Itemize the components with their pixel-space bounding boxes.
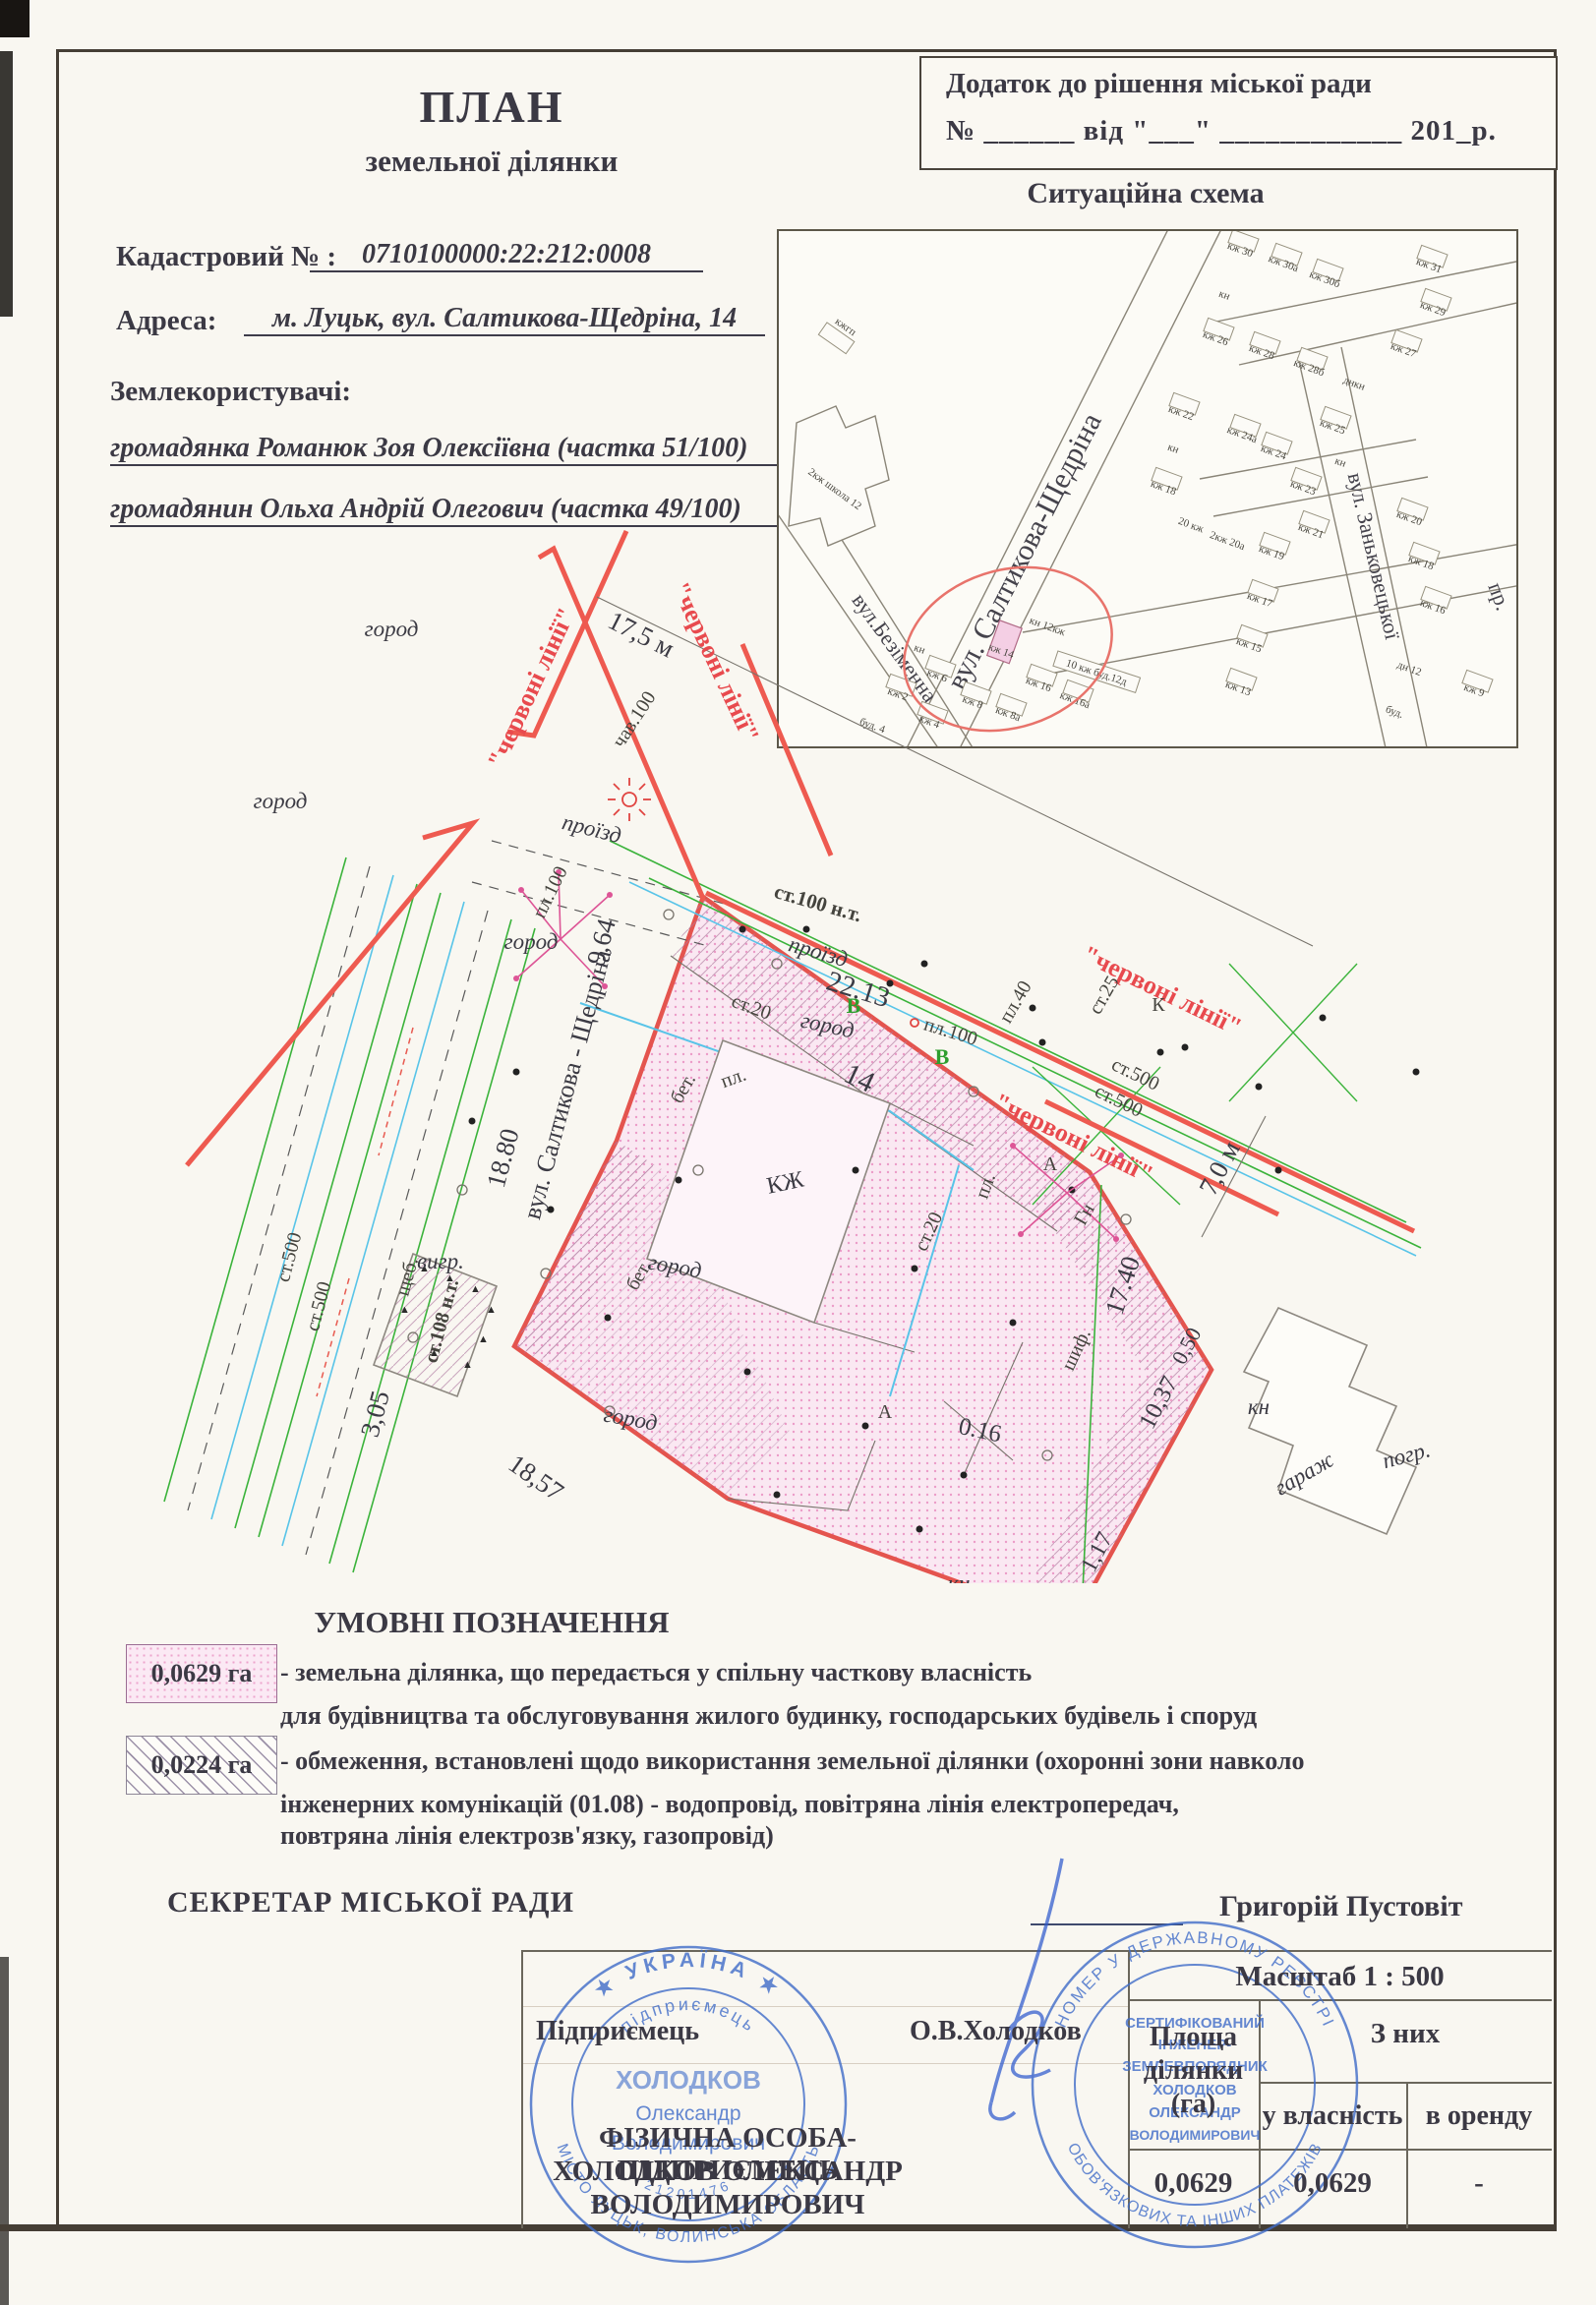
legend-item2-line3: повтряна лінія електрозв'язку, газопрові…	[280, 1821, 774, 1851]
table-area-header-2: ділянки	[1128, 2055, 1259, 2087]
legend-title: УМОВНІ ПОЗНАЧЕННЯ	[148, 1605, 836, 1640]
building-label: днкн	[1341, 375, 1367, 393]
svg-text:▲: ▲	[462, 1359, 473, 1371]
handwritten-signature	[990, 1859, 1062, 2119]
plan-svg: ▲▲▲ ▲▲▲ ▲▲	[98, 516, 1495, 1583]
frame-top	[56, 49, 1557, 52]
label-A: А	[878, 1401, 893, 1423]
label-st500: ст.500	[272, 1230, 306, 1284]
label-A: А	[1043, 1153, 1058, 1175]
address-value: м. Луцьк, вул. Салтикова-Щедріна, 14	[244, 303, 765, 336]
svg-text:▲: ▲	[486, 1304, 497, 1316]
page-title: ПЛАН	[148, 81, 836, 133]
garage-building	[1244, 1308, 1416, 1534]
stamp2-center-6: ВОЛОДИМИРОВИЧ	[1130, 2127, 1261, 2143]
label-st100: ст.100 н.т.	[772, 879, 864, 926]
dim-18-80: 18.80	[481, 1125, 525, 1190]
table-ownership-header: у власність	[1259, 2100, 1406, 2132]
cadastral-value: 0710100000:22:212:0008	[310, 239, 703, 272]
scan-artifact	[0, 0, 30, 37]
label-pogr: погр.	[1380, 1437, 1433, 1473]
building-label: кн	[1166, 442, 1181, 456]
scanned-land-plan-document: Додаток до рішення міської ради № ______…	[0, 0, 1596, 2305]
table-area-value: 0,0629	[1128, 2167, 1259, 2200]
entrepreneur-signature-name: О.В.Холодков	[910, 2016, 1082, 2047]
fop-line2: ХОЛОДКОВ ОЛЕКСАНДР	[521, 2156, 934, 2188]
label-kn: кн	[1248, 1394, 1270, 1419]
frame-right	[1554, 49, 1557, 2230]
legend-item1-line1: - земельна ділянка, що передається у спі…	[280, 1658, 1032, 1687]
address-label: Адреса:	[116, 305, 216, 337]
annex-line2: № ______ від "___" ____________ 201_р.	[946, 115, 1497, 148]
scan-artifact	[0, 51, 13, 317]
street-utility-lines	[164, 857, 535, 1572]
svg-text:★ УКРАЇНА ★: ★ УКРАЇНА ★	[590, 1949, 787, 2002]
landuser-1: громадянка Романюк Зоя Олексіївна (частк…	[110, 433, 791, 466]
cadastral-label: Кадастровий № :	[116, 241, 336, 273]
dim-3-05: 3,05	[355, 1388, 395, 1440]
legend-swatch-plot: 0,0629 га	[126, 1644, 277, 1703]
table-lease-value: -	[1406, 2167, 1552, 2200]
dim-18-57: 18,57	[503, 1448, 569, 1507]
label-K: К	[1152, 994, 1165, 1016]
stamp1-ring-top: ★ УКРАЇНА ★	[590, 1949, 787, 2002]
label-V: В	[935, 1044, 950, 1069]
dim-17-5: 17,5 м	[604, 605, 680, 663]
label-vygr: вигр.	[417, 1249, 464, 1273]
legend-swatch-restriction: 0,0224 га	[126, 1736, 277, 1795]
svg-text:▲: ▲	[478, 1333, 489, 1345]
entrepreneur-label: Підприємець	[536, 2016, 699, 2047]
legend-item1-line2: для будівництва та обслуговування жилого…	[280, 1701, 1257, 1731]
kzhgp-building: кжгп	[818, 312, 861, 353]
label-kn: кн	[947, 1571, 970, 1583]
scheme-title: Ситуаційна схема	[777, 177, 1514, 210]
building-label: кн	[1333, 455, 1348, 470]
plan-drawing: ▲▲▲ ▲▲▲ ▲▲	[98, 516, 1495, 1583]
label-V: В	[847, 993, 861, 1018]
legend-item2-line1: - обмеження, встановлені щодо використан…	[280, 1746, 1305, 1776]
label-gorod: город	[365, 617, 419, 641]
table-lease-header: в оренду	[1406, 2100, 1552, 2132]
legend-item2-line2: інженерних комунікацій (01.08) - водопро…	[280, 1790, 1179, 1819]
fop-line3: ВОЛОДИМИРОВИЧ	[521, 2189, 934, 2221]
stamp1-center-1: ХОЛОДКОВ	[616, 2065, 761, 2095]
table-area-header-3: (га)	[1128, 2089, 1259, 2120]
annex-line1: Додаток до рішення міської ради	[946, 68, 1372, 100]
landusers-label: Землекористувачі:	[110, 376, 351, 408]
table-ownership-value: 0,0629	[1259, 2167, 1406, 2200]
table-ofthem-header: З них	[1259, 2018, 1552, 2050]
page-subtitle: земельної ділянки	[148, 144, 836, 179]
scan-artifact	[0, 1957, 9, 2305]
label-gorod: город	[504, 929, 559, 954]
table-area-header-1: Площа	[1128, 2022, 1259, 2053]
frame-left	[56, 49, 59, 2230]
label-pl40: пл.40	[995, 977, 1036, 1028]
label-gorod: город	[254, 789, 308, 813]
table-scale: Масштаб 1 : 500	[1128, 1961, 1552, 1993]
svg-text:▲: ▲	[399, 1304, 410, 1316]
label-pl100: пл.100	[529, 863, 572, 922]
red-lines-label: "червоні лінії"	[482, 603, 581, 772]
building-label: кн	[1217, 288, 1232, 303]
svg-text:▲: ▲	[470, 1283, 481, 1295]
annex-box: Додаток до рішення міської ради № ______…	[919, 56, 1558, 170]
label-st500: ст.500	[302, 1279, 335, 1333]
